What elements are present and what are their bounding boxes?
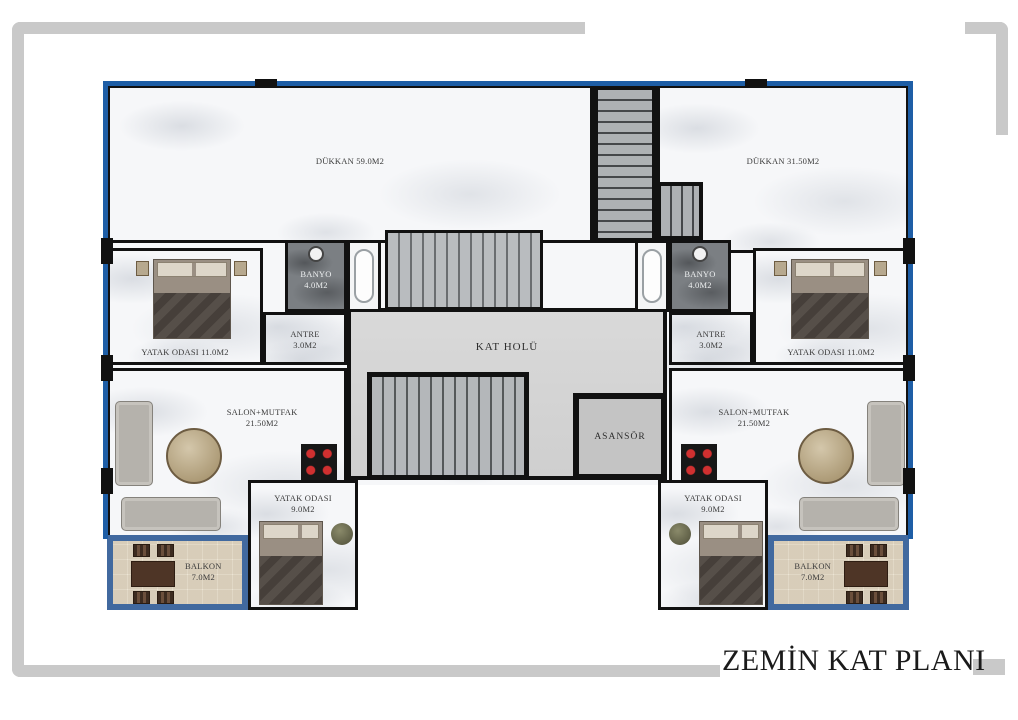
stairwell-top-extension — [657, 182, 703, 240]
plant-icon — [331, 523, 353, 545]
chair — [157, 591, 174, 604]
bathtub-left — [347, 240, 381, 312]
wall-junction — [903, 355, 915, 381]
sofa-furniture — [115, 401, 153, 486]
bed-furniture — [791, 259, 869, 339]
chair — [846, 591, 863, 604]
frame-left-bar — [12, 22, 24, 677]
room-label: YATAK ODASI 11.0M2 — [756, 347, 906, 358]
sink-icon — [308, 246, 324, 262]
chair — [846, 544, 863, 557]
room-balkon-right: BALKON 7.0M2 — [768, 535, 909, 610]
plan-title: ZEMİN KAT PLANI — [722, 644, 974, 678]
nightstand — [136, 261, 149, 276]
chair — [157, 544, 174, 557]
room-balkon-left: BALKON 7.0M2 — [107, 535, 248, 610]
room-area: 4.0M2 — [288, 280, 344, 291]
room-label: BALKON — [165, 561, 242, 572]
frame-top-right-corner-v — [996, 22, 1008, 135]
pillows — [795, 262, 865, 277]
room-label: BALKON — [774, 561, 851, 572]
stairwell-top — [593, 85, 657, 243]
room-area: 21.50M2 — [180, 418, 344, 429]
exterior-wall-top — [103, 81, 913, 86]
bed-furniture — [153, 259, 231, 339]
dining-table — [844, 561, 888, 587]
room-label: YATAK ODASI — [251, 493, 355, 504]
room-label: ANTRE — [672, 329, 750, 340]
wall-junction — [101, 468, 113, 494]
room-area: 7.0M2 — [165, 572, 242, 583]
stove-icon — [681, 444, 717, 480]
nightstand — [234, 261, 247, 276]
pillows — [157, 262, 227, 277]
sink-icon — [692, 246, 708, 262]
wall-junction — [745, 79, 767, 88]
room-antre-right: ANTRE 3.0M2 — [669, 312, 753, 365]
round-table — [166, 428, 222, 484]
room-area: 4.0M2 — [672, 280, 728, 291]
room-area: 3.0M2 — [266, 340, 344, 351]
wall-junction — [903, 468, 915, 494]
room-area: 7.0M2 — [774, 572, 851, 583]
room-label: BANYO — [288, 269, 344, 280]
room-label: BANYO — [672, 269, 728, 280]
nightstand — [874, 261, 887, 276]
room-label: DÜKKAN 59.0M2 — [110, 156, 590, 167]
blanket — [154, 293, 230, 338]
room-label: YATAK ODASI 11.0M2 — [110, 347, 260, 358]
chair — [870, 591, 887, 604]
room-yatak-odasi-9-right: YATAK ODASI 9.0M2 — [658, 480, 768, 610]
chair — [133, 591, 150, 604]
chair — [133, 544, 150, 557]
wall-junction — [903, 238, 915, 264]
entry-stairs — [385, 230, 543, 310]
room-yatak-odasi-9-left: YATAK ODASI 9.0M2 — [248, 480, 358, 610]
chair — [870, 544, 887, 557]
room-banyo-left: BANYO 4.0M2 — [285, 240, 347, 312]
room-area: 9.0M2 — [251, 504, 355, 515]
room-yatak-odasi-11-right: YATAK ODASI 11.0M2 — [753, 248, 909, 365]
grand-staircase — [367, 372, 529, 480]
room-label: SALON+MUTFAK — [672, 407, 836, 418]
pillows — [703, 524, 759, 539]
pillows — [263, 524, 319, 539]
sofa-furniture — [121, 497, 221, 531]
blanket — [700, 556, 762, 604]
room-area: 21.50M2 — [672, 418, 836, 429]
wall-junction — [101, 355, 113, 381]
sofa-furniture — [867, 401, 905, 486]
sofa-furniture — [799, 497, 899, 531]
bathtub-icon — [642, 249, 662, 303]
stove-icon — [301, 444, 337, 480]
room-label: SALON+MUTFAK — [180, 407, 344, 418]
room-antre-left: ANTRE 3.0M2 — [263, 312, 347, 365]
round-table — [798, 428, 854, 484]
room-asansor: ASANSÖR — [573, 393, 667, 480]
room-label: KAT HOLÜ — [351, 340, 663, 354]
room-label: ASANSÖR — [579, 431, 661, 443]
room-area: 3.0M2 — [672, 340, 750, 351]
bathtub-icon — [354, 249, 374, 303]
room-area: 9.0M2 — [661, 504, 765, 515]
room-label: DÜKKAN 31.50M2 — [660, 156, 906, 167]
room-label: YATAK ODASI — [661, 493, 765, 504]
floor-plan-page: DÜKKAN 59.0M2 DÜKKAN 31.50M2 KAT HOLÜ AS… — [0, 0, 1018, 720]
dining-table — [131, 561, 175, 587]
frame-bottom-bar — [12, 665, 720, 677]
wall-junction — [255, 79, 277, 88]
blanket — [792, 293, 868, 338]
room-banyo-right: BANYO 4.0M2 — [669, 240, 731, 312]
frame-top-bar — [12, 22, 585, 34]
bathtub-right — [635, 240, 669, 312]
room-yatak-odasi-11-left: YATAK ODASI 11.0M2 — [107, 248, 263, 365]
blanket — [260, 556, 322, 604]
bed-furniture — [699, 521, 763, 605]
plant-icon — [669, 523, 691, 545]
bed-furniture — [259, 521, 323, 605]
room-dukkan-left: DÜKKAN 59.0M2 — [107, 85, 593, 243]
room-label: ANTRE — [266, 329, 344, 340]
nightstand — [774, 261, 787, 276]
wall-junction — [101, 238, 113, 264]
